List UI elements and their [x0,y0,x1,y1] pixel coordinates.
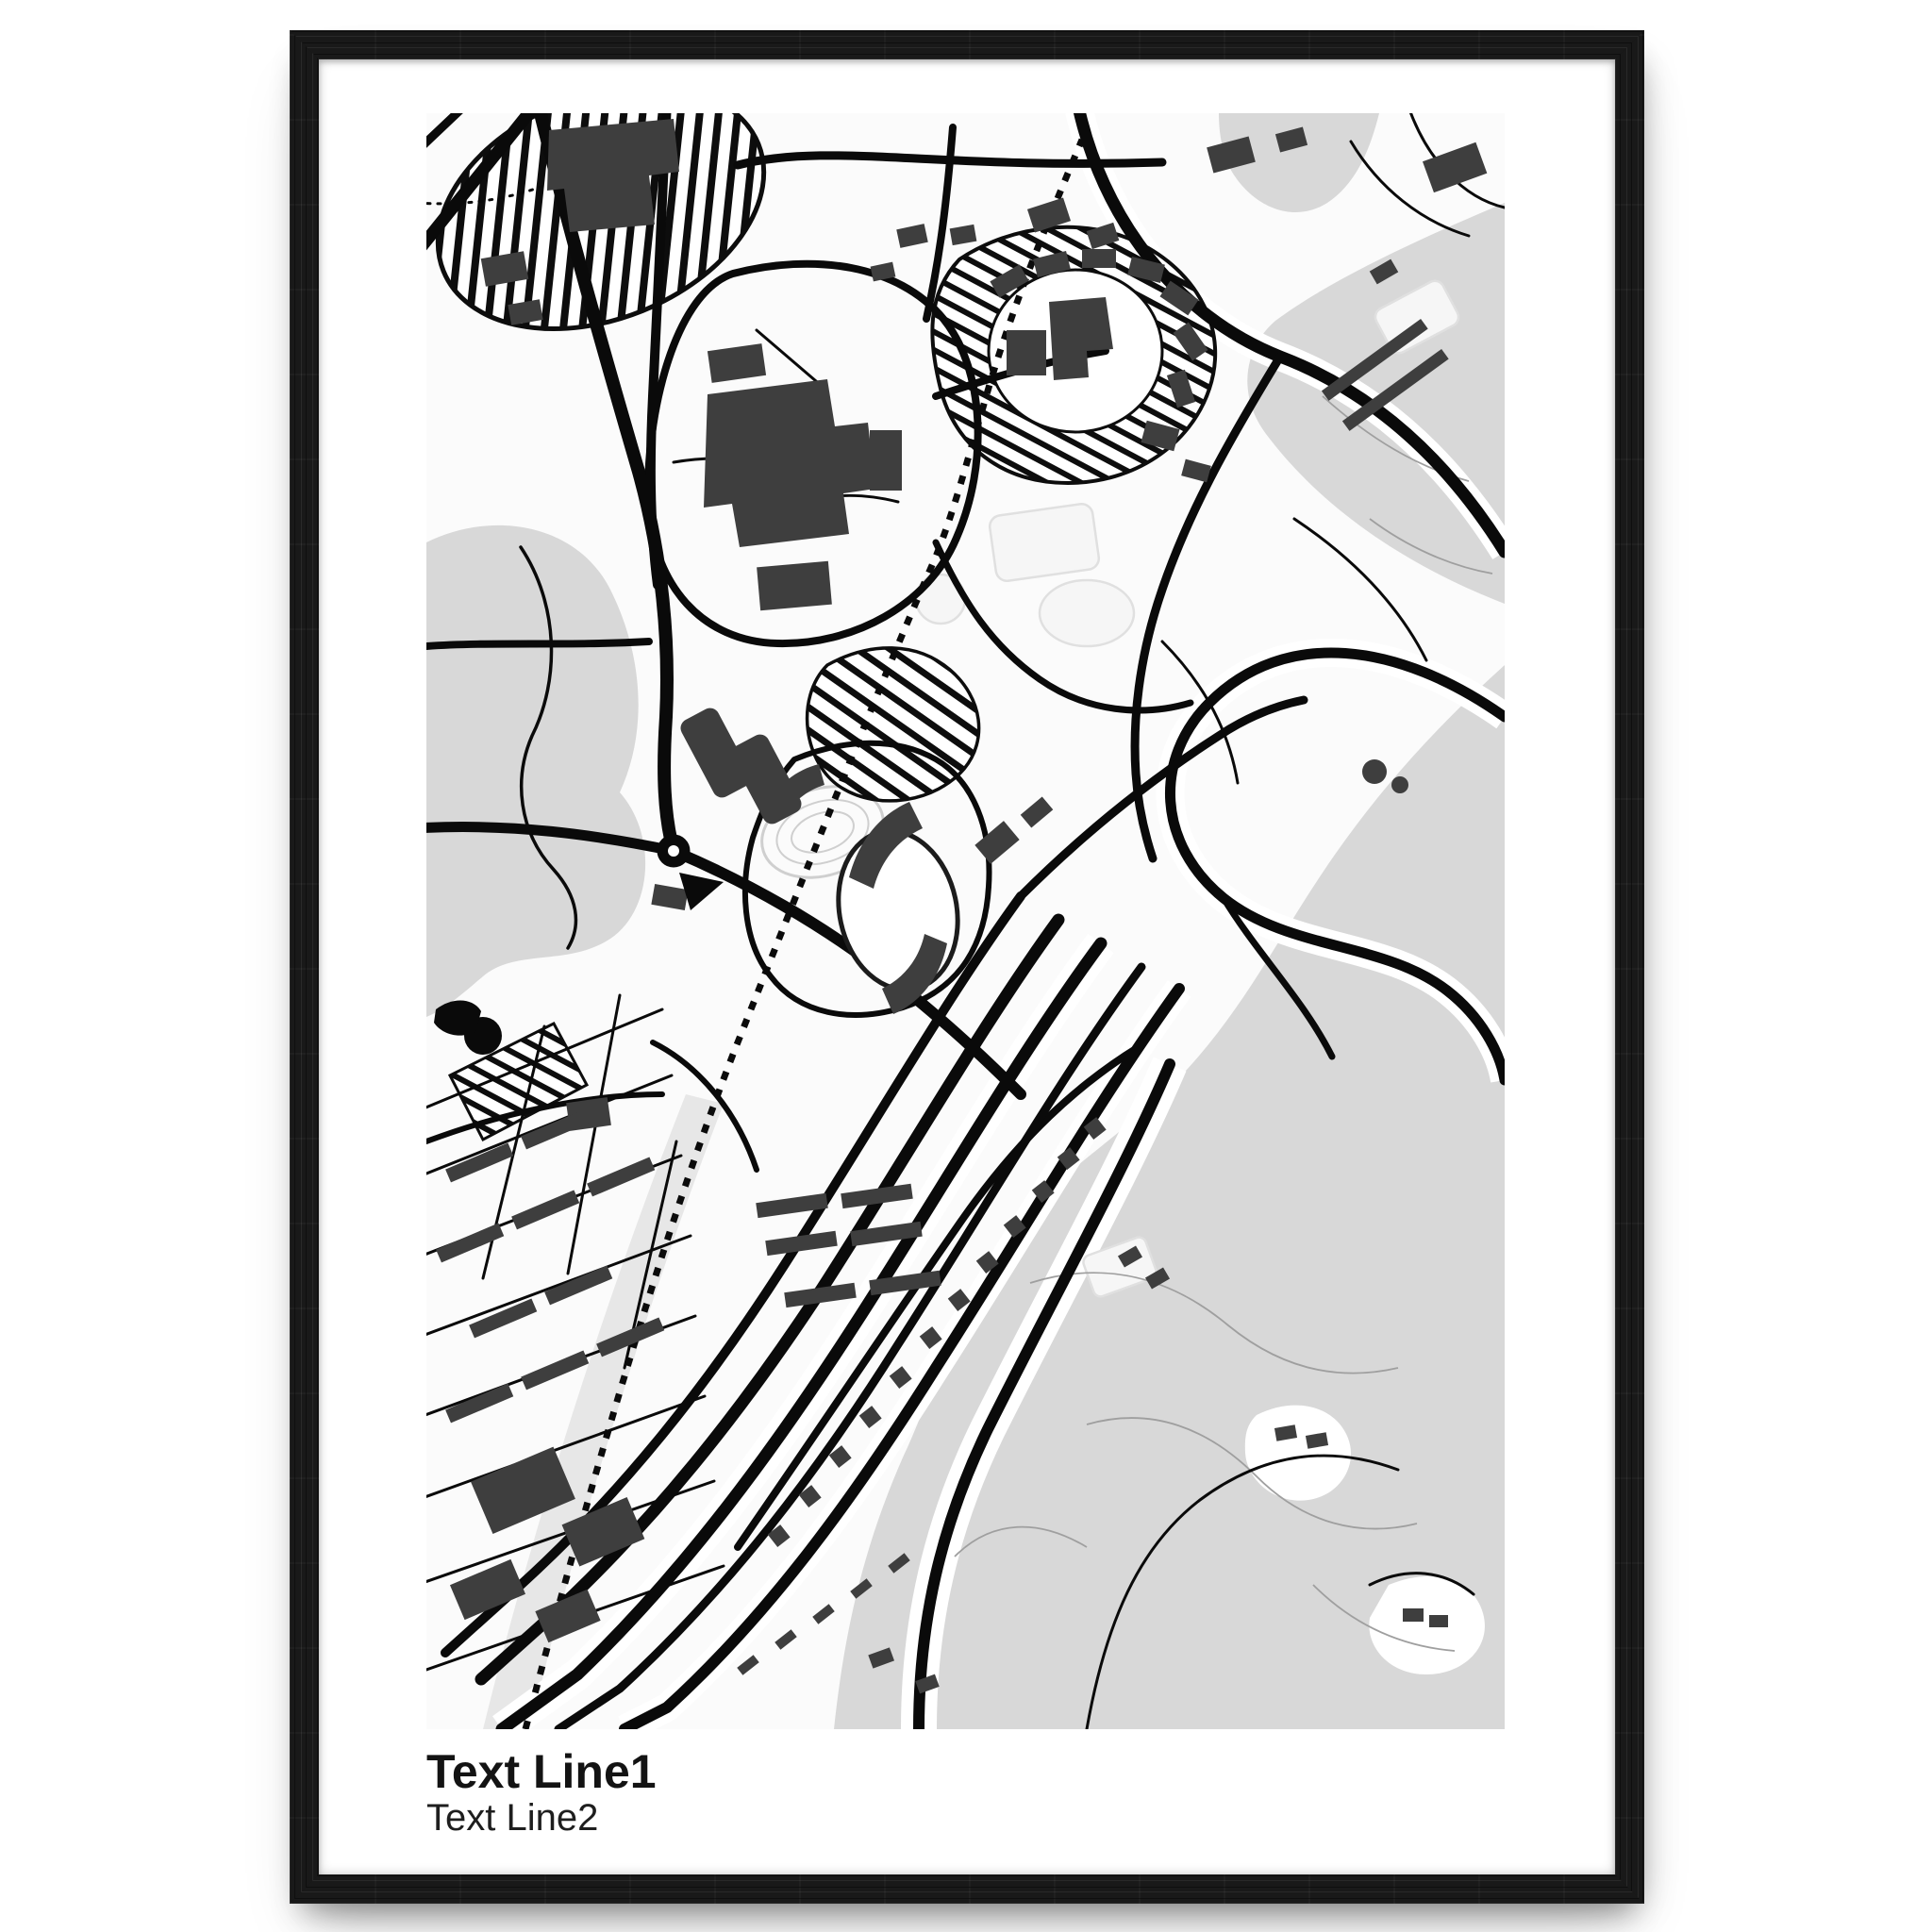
poster-matte: Text Line1 Text Line2 [319,59,1615,1874]
map-print [426,113,1505,1729]
poster-subtitle: Text Line2 [426,1797,657,1840]
product-mockup-scene: Text Line1 Text Line2 [0,0,1932,1932]
frame-side-bottom [290,1874,1644,1904]
frame-side-right [1615,30,1644,1904]
poster-title: Text Line1 [426,1746,657,1797]
poster-frame: Text Line1 Text Line2 [290,30,1644,1904]
parking-stadium [808,648,979,801]
frame-side-left [290,30,319,1904]
poster-caption: Text Line1 Text Line2 [426,1746,657,1840]
map-svg [426,113,1505,1729]
frame-side-top [290,30,1644,59]
